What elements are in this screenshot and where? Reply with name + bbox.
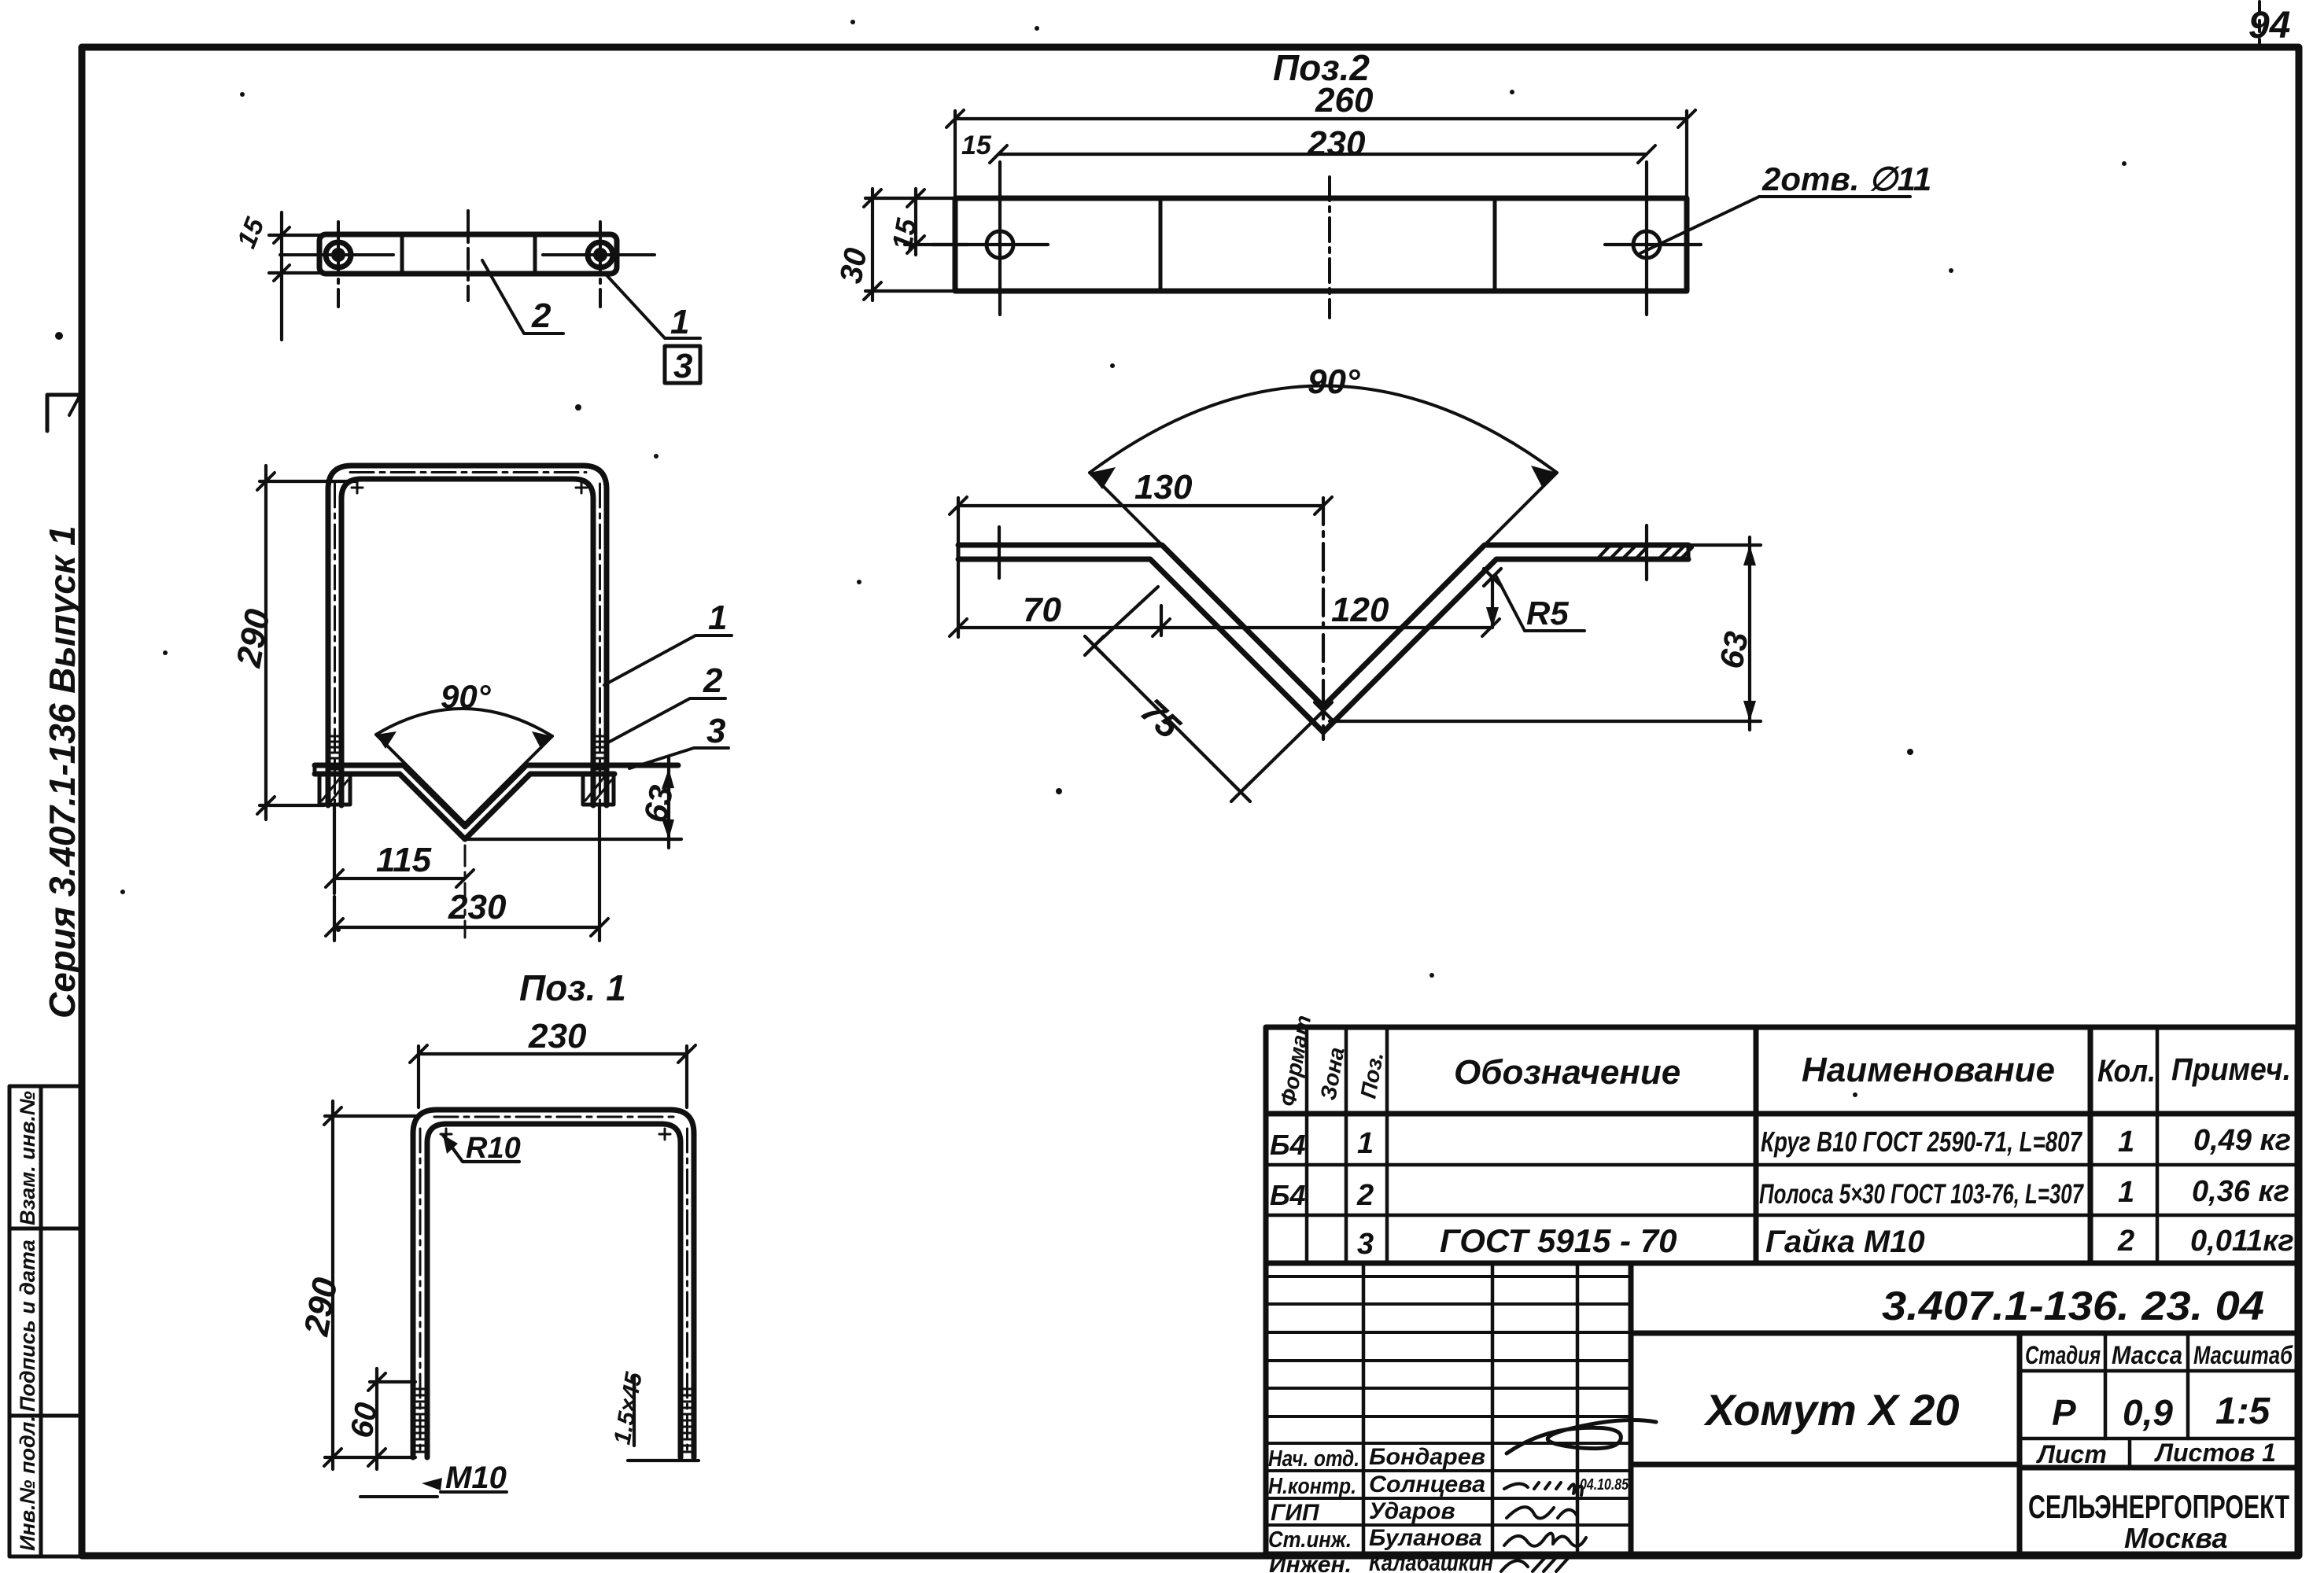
- svg-text:Серия 3.407.1-136 Выпуск 1: Серия 3.407.1-136 Выпуск 1: [42, 525, 83, 1019]
- svg-text:60: 60: [345, 1400, 385, 1440]
- svg-text:Поз.: Поз.: [1356, 1050, 1388, 1100]
- svg-text:2: 2: [703, 661, 723, 700]
- svg-text:R10: R10: [466, 1132, 521, 1165]
- svg-text:0,011кг: 0,011кг: [2190, 1225, 2294, 1258]
- svg-text:Кол.: Кол.: [2097, 1054, 2156, 1089]
- svg-text:Полоса 5×30 ГОСТ 103-76, L=307: Полоса 5×30 ГОСТ 103-76, L=307: [1759, 1179, 2084, 1210]
- svg-text:ГИП: ГИП: [1271, 1500, 1320, 1526]
- svg-text:Ударов: Ударов: [1369, 1498, 1455, 1524]
- svg-text:04.10.85: 04.10.85: [1580, 1476, 1629, 1494]
- svg-text:R5: R5: [1526, 595, 1569, 632]
- svg-text:Р: Р: [2052, 1392, 2076, 1433]
- svg-text:1:5: 1:5: [2215, 1391, 2271, 1432]
- svg-text:Буланова: Буланова: [1369, 1525, 1482, 1551]
- svg-text:Наименование: Наименование: [1802, 1051, 2055, 1089]
- svg-text:Масштаб: Масштаб: [2193, 1341, 2293, 1369]
- svg-text:Н.контр.: Н.контр.: [1268, 1474, 1356, 1499]
- svg-text:1: 1: [708, 599, 727, 637]
- svg-text:70: 70: [1023, 591, 1061, 629]
- svg-text:Ст.инж.: Ст.инж.: [1268, 1527, 1352, 1553]
- svg-text:3: 3: [673, 347, 692, 385]
- svg-text:СЕЛЬЭНЕРГОПРОЕКТ: СЕЛЬЭНЕРГОПРОЕКТ: [2028, 1488, 2289, 1525]
- svg-text:230: 230: [528, 1017, 587, 1055]
- svg-text:1.5×45: 1.5×45: [609, 1369, 647, 1446]
- svg-text:0,9: 0,9: [2123, 1392, 2173, 1433]
- svg-text:30: 30: [834, 245, 874, 285]
- svg-text:1: 1: [2118, 1176, 2134, 1209]
- svg-text:260: 260: [1315, 81, 1374, 120]
- svg-text:Б4: Б4: [1270, 1179, 1306, 1211]
- svg-text:3: 3: [1357, 1228, 1374, 1261]
- svg-text:ГОСТ 5915 - 70: ГОСТ 5915 - 70: [1440, 1222, 1677, 1259]
- svg-text:Гайка М10: Гайка М10: [1765, 1225, 1925, 1259]
- svg-text:Москва: Москва: [2124, 1522, 2228, 1554]
- svg-text:3.407.1-136. 23. 04: 3.407.1-136. 23. 04: [1882, 1284, 2264, 1329]
- svg-text:290: 290: [229, 606, 277, 670]
- svg-text:63: 63: [1713, 628, 1755, 671]
- svg-text:Листов 1: Листов 1: [2154, 1439, 2276, 1467]
- svg-text:Бондарев: Бондарев: [1369, 1444, 1485, 1470]
- svg-text:1: 1: [2118, 1125, 2134, 1159]
- svg-text:75: 75: [1133, 691, 1188, 746]
- svg-text:1: 1: [670, 303, 689, 341]
- svg-text:15: 15: [961, 131, 992, 160]
- svg-text:Масса: Масса: [2112, 1341, 2182, 1369]
- svg-text:Примеч.: Примеч.: [2171, 1052, 2291, 1087]
- svg-text:3: 3: [706, 712, 725, 750]
- svg-text:2: 2: [1356, 1179, 1374, 1212]
- svg-text:Подпись и дата: Подпись и дата: [16, 1240, 39, 1412]
- svg-text:0,36 кг: 0,36 кг: [2192, 1175, 2289, 1208]
- svg-text:2: 2: [2117, 1225, 2134, 1258]
- svg-text:Круг В10 ГОСТ 2590-71, L=807: Круг В10 ГОСТ 2590-71, L=807: [1761, 1125, 2083, 1158]
- svg-text:90°: 90°: [441, 678, 492, 715]
- svg-text:Инжен.: Инжен.: [1269, 1552, 1352, 1573]
- svg-text:90°: 90°: [1308, 363, 1360, 401]
- svg-text:Б4: Б4: [1270, 1129, 1306, 1161]
- svg-text:230: 230: [448, 888, 507, 926]
- svg-text:130: 130: [1134, 468, 1193, 507]
- svg-text:Нач. отд.: Нач. отд.: [1268, 1446, 1359, 1472]
- svg-text:115: 115: [376, 841, 432, 879]
- svg-text:Калабашкин: Калабашкин: [1369, 1550, 1493, 1573]
- svg-text:Поз. 1: Поз. 1: [519, 967, 626, 1008]
- svg-text:Солнцева: Солнцева: [1369, 1472, 1485, 1497]
- svg-text:15: 15: [886, 216, 924, 253]
- svg-text:63: 63: [636, 782, 681, 825]
- svg-text:94: 94: [2248, 5, 2290, 46]
- svg-text:Взам. инв.№: Взам. инв.№: [16, 1091, 39, 1225]
- svg-text:290: 290: [297, 1274, 345, 1339]
- svg-text:Лист: Лист: [2036, 1440, 2107, 1468]
- svg-text:1: 1: [1357, 1127, 1374, 1160]
- svg-text:M10: M10: [445, 1461, 507, 1495]
- svg-text:Хомут Х 20: Хомут Х 20: [1703, 1385, 1960, 1435]
- svg-text:2отв. ∅11: 2отв. ∅11: [1761, 160, 1931, 197]
- svg-text:120: 120: [1331, 591, 1389, 629]
- svg-text:Инв.№ подл.: Инв.№ подл.: [16, 1416, 39, 1551]
- svg-text:15: 15: [231, 213, 271, 252]
- svg-text:230: 230: [1307, 124, 1366, 163]
- svg-text:Обозначение: Обозначение: [1454, 1053, 1680, 1092]
- svg-text:Стадия: Стадия: [2025, 1341, 2101, 1369]
- svg-text:Зона: Зона: [1315, 1045, 1348, 1102]
- svg-text:0,49 кг: 0,49 кг: [2193, 1124, 2291, 1157]
- svg-text:2: 2: [531, 297, 551, 335]
